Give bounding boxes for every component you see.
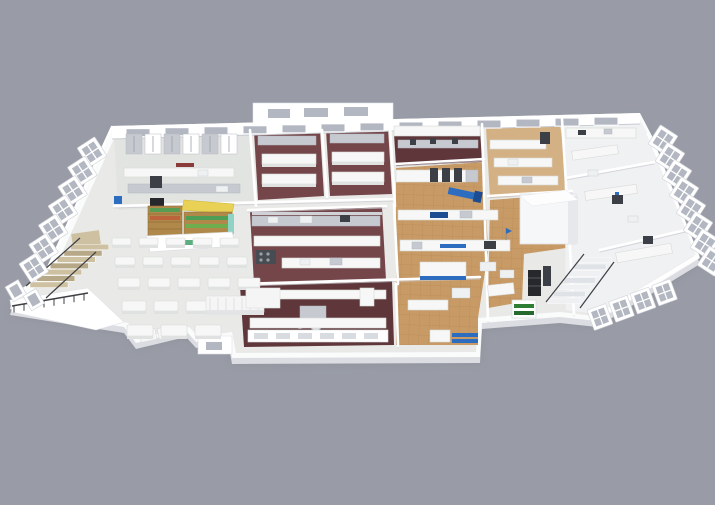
stair-step <box>579 257 611 263</box>
fridge-unit <box>183 134 199 154</box>
cafeteria-table <box>171 257 191 268</box>
cafeteria-table <box>227 257 247 268</box>
oven-unit <box>150 176 162 188</box>
fridge-unit <box>202 134 218 154</box>
stair-step <box>553 291 585 297</box>
fridge-unit <box>221 134 237 154</box>
display-screen <box>150 198 164 207</box>
cafeteria-table <box>154 301 178 314</box>
packing-machine <box>420 262 466 278</box>
cafeteria-table <box>127 325 153 339</box>
stair-step <box>574 264 606 270</box>
stair-step <box>548 298 580 304</box>
wall-sign-icon <box>114 196 122 204</box>
floorplan-render: 3D isometric cutaway rendering of a faci… <box>0 0 715 505</box>
fridge-unit <box>126 134 142 154</box>
cafeteria-table <box>122 301 146 314</box>
cafeteria-table <box>148 278 170 290</box>
range-stove <box>256 250 276 264</box>
cafeteria-table <box>178 278 200 290</box>
plant-rack <box>512 300 536 318</box>
cafeteria-table <box>166 238 185 248</box>
robot-arm-station <box>612 195 623 204</box>
kiosk-side-panel <box>228 214 234 234</box>
cafeteria-table <box>199 257 219 268</box>
galley-kitchen <box>252 212 382 268</box>
cold-room <box>520 190 578 244</box>
cafeteria-table <box>220 238 239 248</box>
blue-mat <box>452 333 478 337</box>
cafeteria-table <box>195 325 221 339</box>
cafeteria-table <box>118 278 140 290</box>
cafeteria-table <box>115 257 135 268</box>
cafeteria-table <box>143 257 163 268</box>
wood-tile-grid <box>396 162 488 345</box>
stair-step <box>71 244 109 250</box>
cafeteria-table <box>112 238 131 248</box>
stair-step <box>558 284 590 290</box>
stair-step <box>64 251 102 257</box>
red-counter-strip <box>176 163 194 167</box>
labs-back-bench <box>566 128 636 138</box>
storage-rack <box>528 270 541 296</box>
stair-step <box>569 271 601 277</box>
render-canvas: 3D isometric cutaway rendering of a faci… <box>0 0 715 505</box>
fridge-unit <box>164 134 180 154</box>
fridge-unit <box>145 134 161 154</box>
cafeteria-table <box>208 278 230 290</box>
cafeteria-table <box>139 238 158 248</box>
stair-step <box>564 278 596 284</box>
cafeteria-table <box>193 238 212 248</box>
blue-mat-2 <box>452 339 478 343</box>
analyzer-unit <box>643 236 653 244</box>
cafeteria-table <box>161 325 187 339</box>
